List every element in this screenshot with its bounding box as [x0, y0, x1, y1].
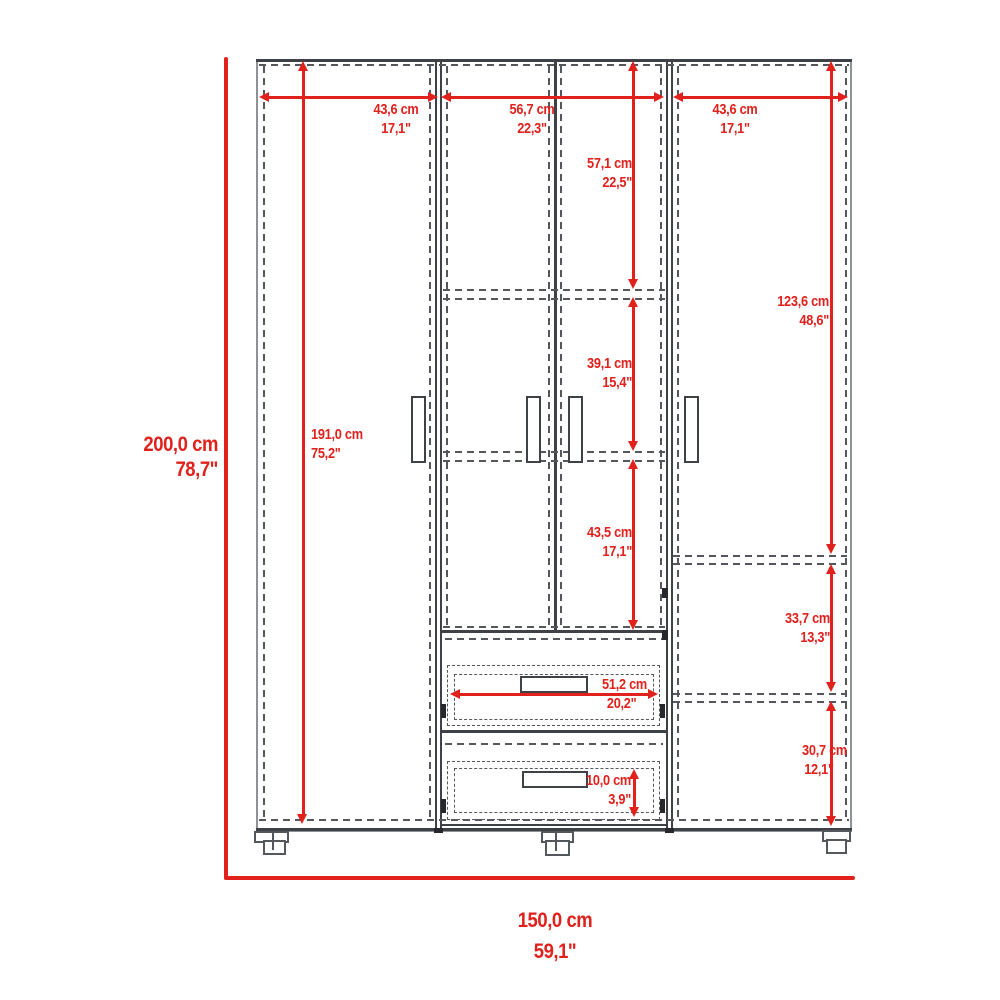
mid-right-door-dashed-edge-r — [660, 66, 662, 626]
dim-value-in: 20,2" — [550, 695, 647, 714]
arrow-right-drawer-width — [648, 689, 658, 699]
dim-label-interior-height: 191,0 cm 75,2" — [311, 426, 408, 464]
mid-left-door-handle — [526, 396, 541, 463]
dim-label-right-shelf: 33,7 cm 13,3" — [733, 610, 830, 648]
foot-middle-centerline — [555, 833, 557, 851]
right-shelf-2a — [673, 693, 847, 695]
dim-value-cm: 123,6 cm — [732, 293, 829, 312]
dim-value-cm: 43,6 cm — [343, 101, 449, 120]
dim-value-cm: 56,7 cm — [479, 101, 585, 120]
drawer-compartment-bottom-line — [441, 824, 668, 826]
dim-line-section-middle — [450, 96, 655, 99]
arrow-down-right-shelf — [826, 682, 836, 692]
dim-line-drawer-height — [633, 778, 636, 808]
dim-value-in: 17,1" — [343, 120, 449, 139]
dim-value-in: 13,3" — [733, 629, 830, 648]
right-door-hinge-lower — [662, 630, 668, 640]
arrow-down-middle-shelf — [628, 441, 638, 451]
arrow-down-middle-bottom — [628, 620, 638, 630]
dim-line-overall-height — [224, 57, 228, 880]
dim-label-middle-top: 57,1 cm 22,5" — [535, 155, 632, 193]
dim-value-cm: 10,0 cm — [534, 772, 631, 791]
foot-left-centerline — [272, 833, 274, 850]
dim-value-cm: 191,0 cm — [311, 426, 408, 445]
foot-middle-bottom — [545, 840, 570, 856]
drawer-compartment-top-line — [441, 630, 668, 633]
right-divider-line-2 — [671, 60, 673, 830]
dim-label-right-top: 123,6 cm 48,6" — [732, 293, 829, 331]
left-door-dashed-edge-l — [263, 66, 265, 819]
left-divider-line — [435, 60, 437, 830]
dim-label-section-middle: 56,7 cm 22,3" — [479, 101, 585, 139]
foot-right-bottom — [826, 839, 847, 854]
drawer2-inset-dashed — [445, 743, 663, 745]
dim-label-drawer-height: 10,0 cm 3,9" — [534, 772, 631, 810]
dim-line-overall-width — [224, 876, 855, 880]
dim-value-in: 22,3" — [479, 120, 585, 139]
arrow-right-section-middle — [654, 92, 664, 102]
dim-label-drawer-width: 51,2 cm 20,2" — [550, 676, 647, 714]
dim-value-cm: 33,7 cm — [733, 610, 830, 629]
foot-left-bottom — [263, 840, 286, 855]
dim-label-middle-shelf: 39,1 cm 15,4" — [535, 355, 632, 393]
dim-value-cm: 200,0 cm — [60, 432, 218, 457]
arrow-right-section-right — [838, 92, 848, 102]
top-dashed-line — [259, 64, 849, 66]
dim-value-in: 17,1" — [682, 120, 788, 139]
dim-line-section-left — [268, 96, 429, 99]
dim-value-cm: 51,2 cm — [550, 676, 647, 695]
dim-value-cm: 57,1 cm — [535, 155, 632, 174]
arrow-down-interior — [297, 814, 307, 824]
right-divider-line — [666, 60, 668, 830]
dim-line-interior-height — [302, 70, 305, 815]
dim-value-cm: 43,6 cm — [682, 101, 788, 120]
middle-shelf-2a — [443, 451, 665, 453]
right-door-dashed-edge-l — [677, 66, 679, 819]
dim-value-cm: 39,1 cm — [535, 355, 632, 374]
mid-right-door-handle — [568, 396, 583, 463]
dim-value-in: 48,6" — [732, 312, 829, 331]
wardrobe-dimension-diagram: 200,0 cm 78,7" 150,0 cm 59,1" 43,6 cm 17… — [0, 0, 1000, 1000]
dim-value-in: 59,1" — [467, 936, 643, 967]
dim-value-cm: 150,0 cm — [467, 905, 643, 936]
dim-value-in: 75,2" — [311, 445, 408, 464]
right-door-dashed-edge-r — [845, 66, 847, 819]
arrow-down-right-bottom — [826, 816, 836, 826]
right-shelf-1b — [673, 563, 847, 565]
base-mark-right — [665, 828, 674, 833]
dim-value-cm: 30,7 cm — [750, 742, 847, 761]
drawer2-slide-left — [441, 799, 446, 813]
dim-value-in: 15,4" — [535, 374, 632, 393]
dim-label-middle-bottom: 43,5 cm 17,1" — [535, 524, 632, 562]
dim-line-right-top — [830, 70, 833, 545]
dim-label-section-right: 43,6 cm 17,1" — [682, 101, 788, 139]
dim-label-right-bottom: 30,7 cm 12,1" — [750, 742, 847, 780]
dim-value-in: 12,1" — [750, 761, 847, 780]
base-mark-left — [434, 828, 443, 833]
dim-value-in: 3,9" — [534, 791, 631, 810]
dim-label-overall-width: 150,0 cm 59,1" — [467, 905, 643, 967]
drawer1-inset-dashed — [445, 638, 663, 640]
arrow-down-middle-top — [628, 279, 638, 289]
drawer1-slide-left — [441, 704, 446, 718]
right-door-hinge-upper — [662, 588, 668, 598]
dim-label-overall-height: 200,0 cm 78,7" — [60, 432, 218, 482]
left-door-handle — [411, 396, 426, 463]
dim-value-in: 22,5" — [535, 174, 632, 193]
left-door-dashed-edge-r — [429, 66, 431, 819]
dim-value-cm: 43,5 cm — [535, 524, 632, 543]
dim-label-section-left: 43,6 cm 17,1" — [343, 101, 449, 139]
arrow-down-right-top — [826, 544, 836, 554]
dim-line-section-right — [682, 96, 839, 99]
middle-shelf-1a — [443, 289, 665, 291]
mid-left-door-dashed-edge-l — [446, 66, 448, 626]
drawer2-slide-right — [660, 799, 665, 813]
dim-value-in: 17,1" — [535, 543, 632, 562]
right-shelf-1a — [673, 555, 847, 557]
right-door-handle — [684, 396, 699, 463]
drawer-separator-line — [441, 730, 668, 733]
dim-value-in: 78,7" — [60, 457, 218, 482]
right-shelf-2b — [673, 701, 847, 703]
drawer1-slide-right — [660, 704, 665, 718]
